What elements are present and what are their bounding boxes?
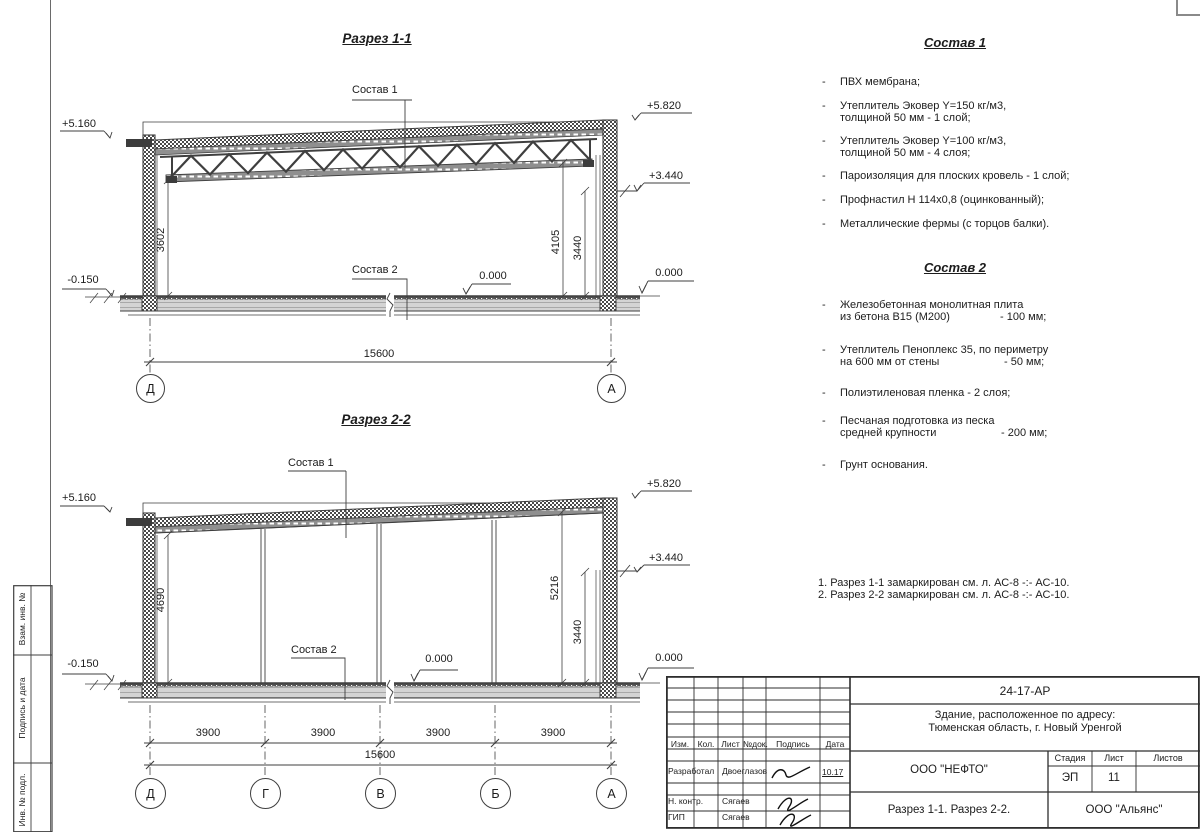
list2-item2-l2: на 600 мм от стены xyxy=(840,356,939,368)
tb-stage-header: Стадия xyxy=(1048,753,1092,763)
bullet: - xyxy=(822,415,826,427)
s1-axis-d: Д xyxy=(136,374,165,403)
bullet: - xyxy=(822,344,826,356)
list2-item4-l1: Песчаная подготовка из песка xyxy=(840,415,994,427)
list2-item1-v: - 100 мм; xyxy=(1000,311,1046,323)
tb-col-ndoc: №док. xyxy=(743,739,766,749)
s1-sostav1-label: Состав 1 xyxy=(352,84,398,96)
tb-name-gip: Сягаев xyxy=(722,812,750,822)
list1-title: Состав 1 xyxy=(885,35,1025,50)
s2-axis-a: А xyxy=(596,778,627,809)
s2-sostav2-label: Состав 2 xyxy=(291,644,337,656)
s1-elev-left-low: -0.150 xyxy=(60,274,106,286)
sidebar-cell-vzam: Взам. инв. № xyxy=(17,589,27,649)
bullet: - xyxy=(822,194,826,206)
s2-dim-bay2: 3900 xyxy=(293,727,353,739)
s1-elev-left-top: +5.160 xyxy=(56,118,102,130)
tb-address-line2: Тюменская область, г. Новый Уренгой xyxy=(850,722,1200,734)
list2-title: Состав 2 xyxy=(885,260,1025,275)
s2-dim-right2: 3440 xyxy=(572,611,584,653)
list2-item5: Грунт основания. xyxy=(840,459,928,471)
section1-title: Разрез 1-1 xyxy=(317,31,437,46)
bullet: - xyxy=(822,76,826,88)
s1-dim-right2: 3440 xyxy=(572,227,584,269)
s2-dim-left: 4690 xyxy=(155,579,167,621)
s2-dim-span: 15600 xyxy=(350,749,410,761)
tb-name-developed: Двоеглазов xyxy=(722,766,767,776)
tb-sheet-header: Лист xyxy=(1092,753,1136,763)
tb-col-data: Дата xyxy=(820,739,850,749)
tb-role-gip: ГИП xyxy=(668,812,685,822)
bullet: - xyxy=(822,218,826,230)
s1-elev-right-top: +5.820 xyxy=(640,100,688,112)
list2-item4-l2: средней крупности xyxy=(840,427,936,439)
s2-dim-bay4: 3900 xyxy=(523,727,583,739)
page-corner-horizontal xyxy=(1176,14,1200,16)
s1-dim-right1: 4105 xyxy=(550,221,562,263)
bullet: - xyxy=(822,387,826,399)
bullet: - xyxy=(822,100,826,112)
s2-dim-right1: 5216 xyxy=(549,567,561,609)
s2-elev-right-mid: +3.440 xyxy=(642,552,690,564)
list2-item1-l2: из бетона В15 (М200) xyxy=(840,311,950,323)
s2-elev-zero-mid: 0.000 xyxy=(418,653,460,665)
tb-col-podpis: Подпись xyxy=(766,739,820,749)
tb-col-list: Лист xyxy=(718,739,743,749)
list1-item4: Пароизоляция для плоских кровель - 1 сло… xyxy=(840,170,1070,182)
sidebar-cell-podpis: Подпись и дата xyxy=(17,673,27,743)
section2-linework xyxy=(60,450,700,820)
tb-caption: Разрез 1-1. Разрез 2-2. xyxy=(850,804,1048,816)
bullet: - xyxy=(822,170,826,182)
sidebar-cell-inv: Инв. № подл. xyxy=(17,770,27,830)
note-2: 2. Разрез 2-2 замаркирован см. л. АС-8 -… xyxy=(818,589,1069,601)
list1-item5: Профнастил Н 114х0,8 (оцинкованный); xyxy=(840,194,1044,206)
list1-item2-l1: Утеплитель Эковер Y=150 кг/м3, xyxy=(840,100,1006,112)
section2-title: Разрез 2-2 xyxy=(316,412,436,427)
s1-elev-zero-mid: 0.000 xyxy=(472,270,514,282)
s2-dim-bay1: 3900 xyxy=(178,727,238,739)
s1-dim-span: 15600 xyxy=(349,348,409,360)
s2-axis-b: Б xyxy=(480,778,511,809)
page-corner-vertical xyxy=(1176,0,1178,14)
list1-item1: ПВХ мембрана; xyxy=(840,76,920,88)
s2-elev-left-low: -0.150 xyxy=(60,658,106,670)
list1-item6: Металлические фермы (с торцов балки). xyxy=(840,218,1049,230)
s1-elev-zero-right: 0.000 xyxy=(646,267,692,279)
s2-elev-left-top: +5.160 xyxy=(56,492,102,504)
s1-dim-left: 3602 xyxy=(155,219,167,261)
list2-item1-l1: Железобетонная монолитная плита xyxy=(840,299,1023,311)
tb-role-developed: Разработал xyxy=(668,766,714,776)
tb-col-izm: Изм. xyxy=(666,739,694,749)
s1-sostav2-label: Состав 2 xyxy=(352,264,398,276)
s1-axis-a: А xyxy=(597,374,626,403)
s2-axis-d: Д xyxy=(135,778,166,809)
tb-doc-number: 24-17-АР xyxy=(850,684,1200,698)
drawing-sheet: Взам. инв. № Подпись и дата Инв. № подл.… xyxy=(0,0,1200,832)
bullet: - xyxy=(822,299,826,311)
s2-dim-bay3: 3900 xyxy=(408,727,468,739)
s2-elev-right-top: +5.820 xyxy=(640,478,688,490)
tb-org-designer: ООО "НЕФТО" xyxy=(850,764,1048,776)
tb-name-ncontrol: Сягаев xyxy=(722,796,750,806)
bullet: - xyxy=(822,135,826,147)
list1-item2-l2: толщиной 50 мм - 1 слой; xyxy=(840,112,971,124)
tb-date-developed: 10.17 xyxy=(822,767,843,777)
s2-axis-g: Г xyxy=(250,778,281,809)
list1-item3-l1: Утеплитель Эковер Y=100 кг/м3, xyxy=(840,135,1006,147)
tb-sheets-header: Листов xyxy=(1136,753,1200,763)
tb-role-ncontrol: Н. контр. xyxy=(668,796,703,806)
s2-elev-zero-right: 0.000 xyxy=(646,652,692,664)
s1-elev-right-mid: +3.440 xyxy=(642,170,690,182)
s2-sostav1-label: Состав 1 xyxy=(288,457,334,469)
list2-item3: Полиэтиленовая пленка - 2 слоя; xyxy=(840,387,1010,399)
note-1: 1. Разрез 1-1 замаркирован см. л. АС-8 -… xyxy=(818,577,1069,589)
list2-item4-v: - 200 мм; xyxy=(1001,427,1047,439)
tb-sheet-value: 11 xyxy=(1092,772,1136,784)
s2-axis-v: В xyxy=(365,778,396,809)
bullet: - xyxy=(822,459,826,471)
tb-col-kol: Кол. xyxy=(694,739,718,749)
tb-address-line1: Здание, расположенное по адресу: xyxy=(850,709,1200,721)
tb-org-contractor: ООО "Альянс" xyxy=(1048,804,1200,816)
tb-stage-value: ЭП xyxy=(1048,772,1092,784)
list2-item2-v: - 50 мм; xyxy=(1004,356,1044,368)
list2-item2-l1: Утеплитель Пеноплекс 35, по периметру xyxy=(840,344,1048,356)
list1-item3-l2: толщиной 50 мм - 4 слоя; xyxy=(840,147,970,159)
